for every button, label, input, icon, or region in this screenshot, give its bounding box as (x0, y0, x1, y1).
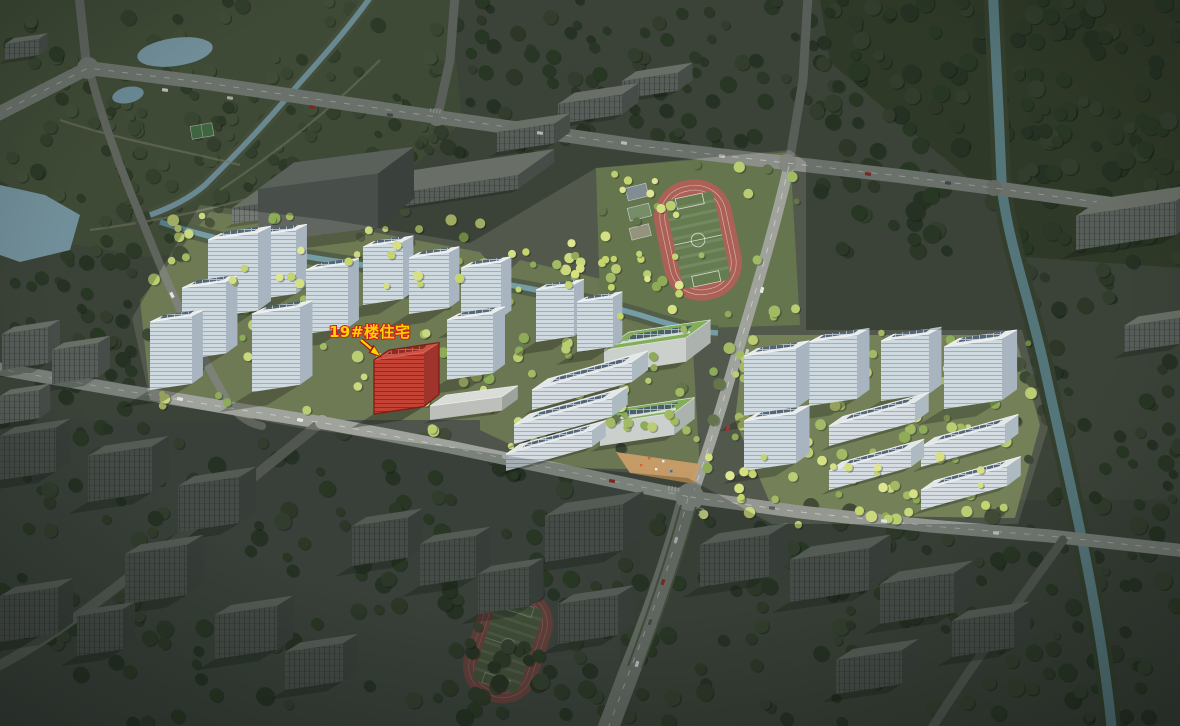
context-dimming-overlay (0, 0, 1180, 726)
rendering-canvas: 19#楼住宅 (0, 0, 1180, 726)
aerial-masterplan-rendering: 19#楼住宅 (0, 0, 1180, 726)
building-19-label: 19#楼住宅 (329, 323, 410, 341)
